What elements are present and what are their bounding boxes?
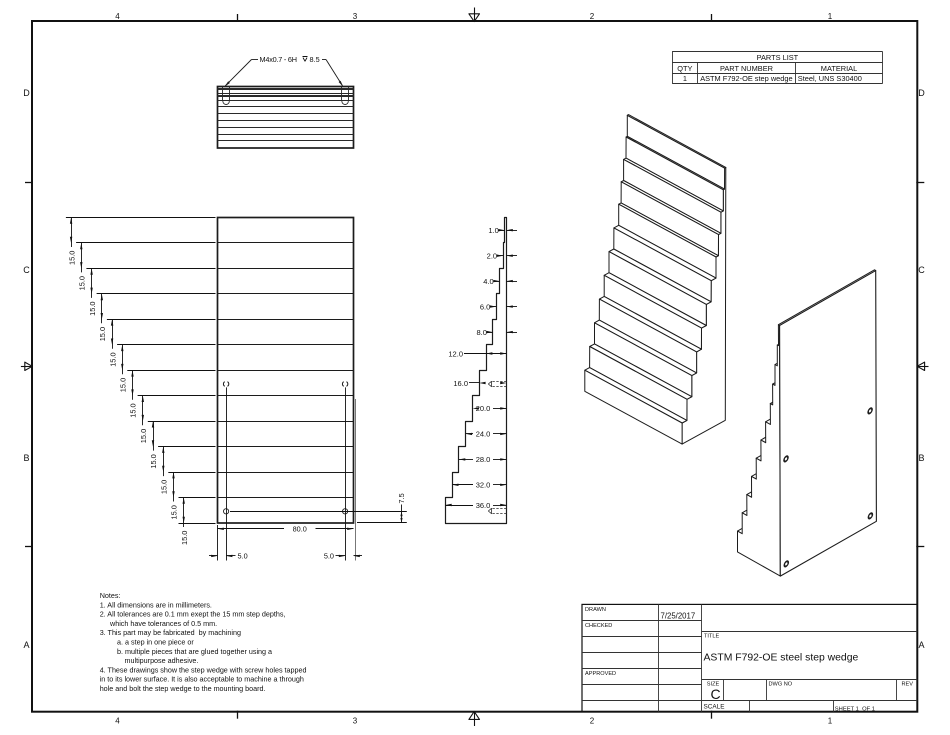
svg-text:A: A [918, 640, 924, 650]
svg-text:4. These drawings show the ste: 4. These drawings show the step wedge wi… [100, 665, 307, 674]
svg-text:15.0: 15.0 [160, 480, 169, 494]
svg-text:SHEET 1 OF 1: SHEET 1 OF 1 [835, 706, 875, 712]
svg-text:16.0: 16.0 [453, 379, 468, 388]
svg-text:2: 2 [590, 12, 595, 21]
svg-text:8.5: 8.5 [310, 55, 320, 64]
svg-text:D: D [918, 88, 925, 98]
svg-text:QTY: QTY [677, 64, 692, 73]
svg-text:a. a step in one piece or: a. a step in one piece or [117, 638, 194, 647]
svg-text:C: C [711, 686, 721, 702]
svg-text:5.0: 5.0 [238, 552, 248, 561]
svg-text:1. All dimensions are in milli: 1. All dimensions are in millimeters. [100, 600, 212, 609]
svg-text:15.0: 15.0 [88, 302, 97, 316]
svg-text:1: 1 [828, 717, 833, 726]
svg-text:ASTM F792-OE step wedge: ASTM F792-OE step wedge [700, 74, 792, 83]
svg-text:15.0: 15.0 [78, 276, 87, 290]
svg-text:1.0: 1.0 [488, 226, 498, 235]
svg-text:TITLE: TITLE [704, 633, 719, 639]
svg-text:5.0: 5.0 [324, 552, 334, 561]
svg-text:15.0: 15.0 [119, 378, 128, 392]
svg-text:2. All tolerances are 0.1 mm e: 2. All tolerances are 0.1 mm exept the 1… [100, 610, 286, 619]
svg-text:DWG NO: DWG NO [769, 682, 793, 688]
svg-text:15.0: 15.0 [170, 505, 179, 519]
svg-text:4.0: 4.0 [483, 277, 493, 286]
svg-text:1: 1 [683, 74, 687, 83]
svg-text:in to its lower surface. It is: in to its lower surface. It is also acce… [100, 675, 304, 684]
svg-text:8.0: 8.0 [476, 328, 486, 337]
svg-text:C: C [23, 265, 30, 275]
svg-text:DRAWN: DRAWN [585, 607, 606, 613]
svg-text:3: 3 [353, 12, 358, 21]
svg-text:12.0: 12.0 [448, 349, 463, 358]
svg-text:28.0: 28.0 [476, 455, 491, 464]
svg-text:15.0: 15.0 [180, 531, 189, 545]
svg-text:7/25/2017: 7/25/2017 [661, 612, 696, 621]
svg-text:MATERIAL: MATERIAL [821, 64, 857, 73]
svg-text:SCALE: SCALE [704, 704, 725, 711]
svg-text:24.0: 24.0 [476, 430, 491, 439]
svg-text:32.0: 32.0 [476, 481, 491, 490]
svg-text:2: 2 [590, 717, 595, 726]
svg-text:which have tolerances of 0.5 m: which have tolerances of 0.5 mm. [109, 619, 217, 628]
svg-text:REV: REV [902, 682, 914, 688]
svg-text:multipurpose adhesive.: multipurpose adhesive. [125, 656, 199, 665]
svg-text:3: 3 [353, 717, 358, 726]
svg-text:3. This part may be fabricated: 3. This part may be fabricated by machin… [100, 628, 241, 637]
svg-text:20.0: 20.0 [476, 404, 491, 413]
svg-text:A: A [23, 640, 29, 650]
svg-text:hole and bolt the step wedge t: hole and bolt the step wedge to the moun… [100, 684, 266, 693]
svg-text:B: B [918, 453, 924, 463]
svg-text:CHECKED: CHECKED [585, 623, 612, 629]
svg-text:6.0: 6.0 [480, 302, 490, 311]
svg-text:7.5: 7.5 [397, 493, 406, 503]
svg-text:C: C [918, 265, 925, 275]
svg-text:4: 4 [115, 12, 120, 21]
svg-text:PART NUMBER: PART NUMBER [720, 64, 773, 73]
svg-text:M4x0.7 - 6H: M4x0.7 - 6H [260, 55, 297, 64]
svg-text:4: 4 [115, 717, 120, 726]
svg-text:B: B [23, 453, 29, 463]
svg-text:15.0: 15.0 [98, 327, 107, 341]
svg-text:ASTM F792-OE steel step wedge: ASTM F792-OE steel step wedge [704, 653, 859, 664]
svg-text:b. multiple pieces that are gl: b. multiple pieces that are glued togeth… [117, 647, 272, 656]
svg-text:15.0: 15.0 [108, 352, 117, 366]
svg-text:36.0: 36.0 [476, 501, 491, 510]
svg-text:15.0: 15.0 [149, 454, 158, 468]
svg-text:APPROVED: APPROVED [585, 671, 616, 677]
svg-text:2.0: 2.0 [487, 252, 497, 261]
svg-text:80.0: 80.0 [293, 524, 307, 533]
svg-text:15.0: 15.0 [129, 403, 138, 417]
svg-text:D: D [23, 88, 30, 98]
svg-text:15.0: 15.0 [139, 429, 148, 443]
svg-text:1: 1 [828, 12, 833, 21]
svg-text:15.0: 15.0 [67, 251, 76, 265]
svg-text:Notes:: Notes: [100, 591, 121, 600]
svg-text:PARTS LIST: PARTS LIST [757, 53, 799, 62]
svg-text:Steel, UNS S30400: Steel, UNS S30400 [798, 74, 862, 83]
